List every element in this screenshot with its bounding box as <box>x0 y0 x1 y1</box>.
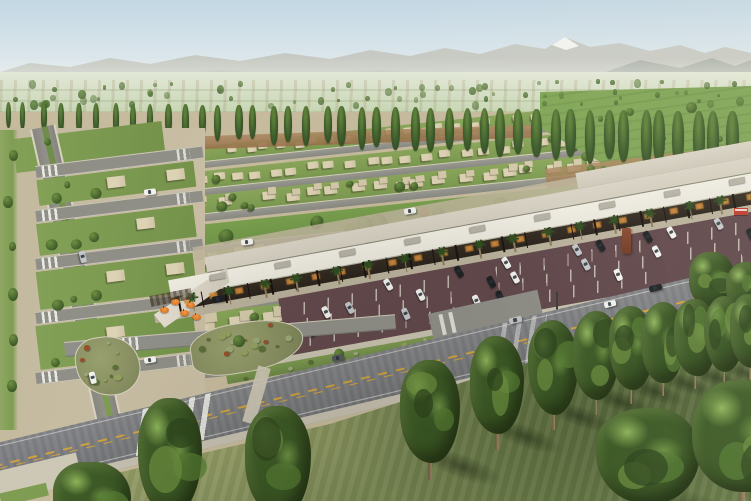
canopy-blob <box>252 417 281 462</box>
canopy-blob <box>739 305 751 334</box>
canopy-blob <box>487 368 503 391</box>
canopy-blob <box>434 408 454 432</box>
tree-canopy <box>53 462 131 501</box>
canopy-blob <box>166 418 197 448</box>
tree-canopy <box>470 336 524 434</box>
foreground-tree <box>470 336 524 450</box>
tree-canopy <box>245 406 311 501</box>
tree-canopy <box>692 380 751 492</box>
canopy-blob <box>683 304 695 336</box>
foreground-tree <box>596 408 700 501</box>
tree-canopy <box>596 408 700 501</box>
red-storefront-sign <box>734 208 748 215</box>
canopy-blob <box>414 389 433 418</box>
canopy-blob <box>534 328 557 359</box>
canopy-blob <box>615 325 634 351</box>
canopy-blob <box>96 491 130 501</box>
foreground-tree <box>692 380 751 501</box>
tree-canopy <box>528 320 578 415</box>
foreground-tree <box>138 398 202 501</box>
canopy-blob <box>709 319 721 350</box>
canopy-blob <box>591 365 609 386</box>
tree-canopy <box>138 398 202 501</box>
tree-canopy <box>400 360 460 463</box>
foreground-tree-row <box>0 0 751 501</box>
foreground-tree <box>528 320 578 430</box>
canopy-blob <box>266 463 300 490</box>
canopy-blob <box>149 446 182 493</box>
foreground-tree <box>53 462 131 501</box>
canopy-blob <box>537 359 553 391</box>
foreground-tree <box>400 360 460 480</box>
aerial-render-scene: Aerial architectural rendering of a mast… <box>0 0 751 501</box>
foreground-tree <box>730 294 751 380</box>
canopy-blob <box>624 449 668 486</box>
tree-canopy <box>730 294 751 368</box>
foreground-tree <box>245 406 311 501</box>
sign-stripe <box>735 209 747 211</box>
